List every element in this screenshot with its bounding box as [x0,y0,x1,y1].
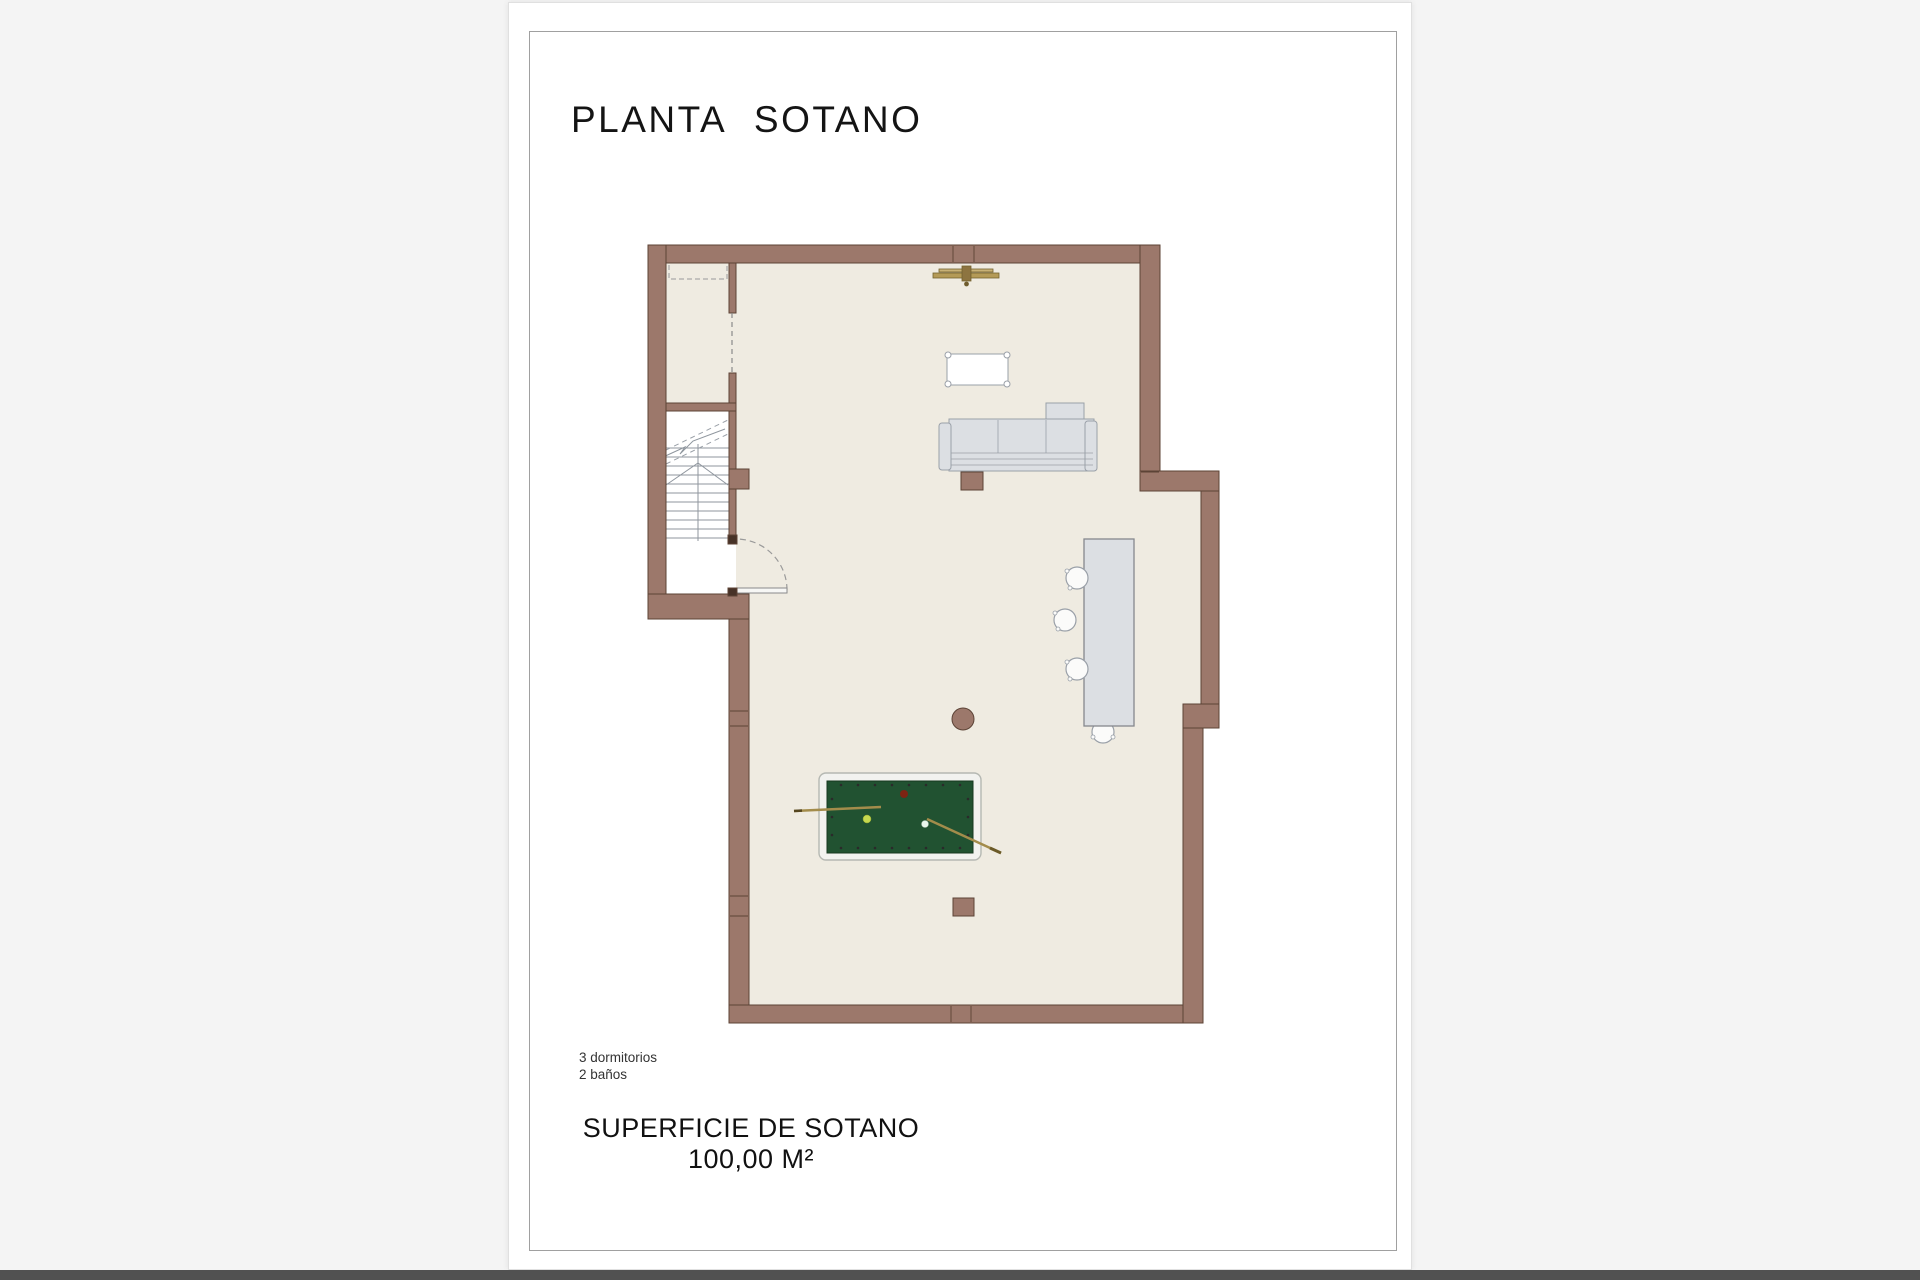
door-jamb-bottom [728,588,737,596]
area-label: SUPERFICIE DE SOTANO [561,1113,941,1144]
door-opening [729,544,736,589]
wall-step-upper [1140,471,1219,491]
wall-divider-a [729,263,736,313]
floor-plan [601,201,1261,1081]
area-block: SUPERFICIE DE SOTANO 100,00 M² [561,1113,941,1175]
wall-right-lower [1183,728,1203,1023]
viewport-bottom-edge [0,1270,1920,1280]
bar-stool-1 [1066,567,1088,589]
pool-ball-red [900,790,908,798]
area-value: 100,00 M² [561,1144,941,1175]
wall-bottom [729,1005,1203,1023]
wall-stair-bottom [648,594,749,619]
door-jamb-top [728,535,737,544]
bathrooms-note: 2 baños [579,1066,657,1083]
wall-closet-divider [666,403,736,411]
bedrooms-note: 3 dormitorios [579,1049,657,1066]
document-page: PLANTA SOTANO [508,2,1412,1270]
wall-left-upper [648,245,666,619]
pool-table-felt [827,781,973,853]
wall-right-upper [1140,245,1160,471]
app-background: { "document": { "title": "PLANTA SOTANO"… [0,0,1920,1280]
round-side-table [952,708,974,730]
pool-ball-cue [922,821,929,828]
sofa-body [949,419,1094,471]
sofa-armrest-right [1085,421,1097,471]
wall-top [648,245,1160,263]
door-leaf [736,588,787,593]
wall-door-stub [729,469,749,489]
wall-right-middle [1201,491,1219,704]
storage-cube [953,898,974,916]
coffee-table [945,352,1010,387]
wall-left-lower [729,619,749,1023]
pool-table [794,773,1001,860]
plan-notes: 3 dormitorios 2 baños [579,1049,657,1083]
sofa-side-table [961,472,983,490]
pool-ball-yellow [863,815,871,823]
wall-divider-b [729,373,736,544]
bar-stool-3 [1066,658,1088,680]
kitchen-island [1084,539,1134,726]
sofa-armrest-left [939,423,951,470]
wall-step-lower [1183,704,1219,728]
plan-title: PLANTA SOTANO [571,99,922,141]
closet-floor [666,263,736,411]
